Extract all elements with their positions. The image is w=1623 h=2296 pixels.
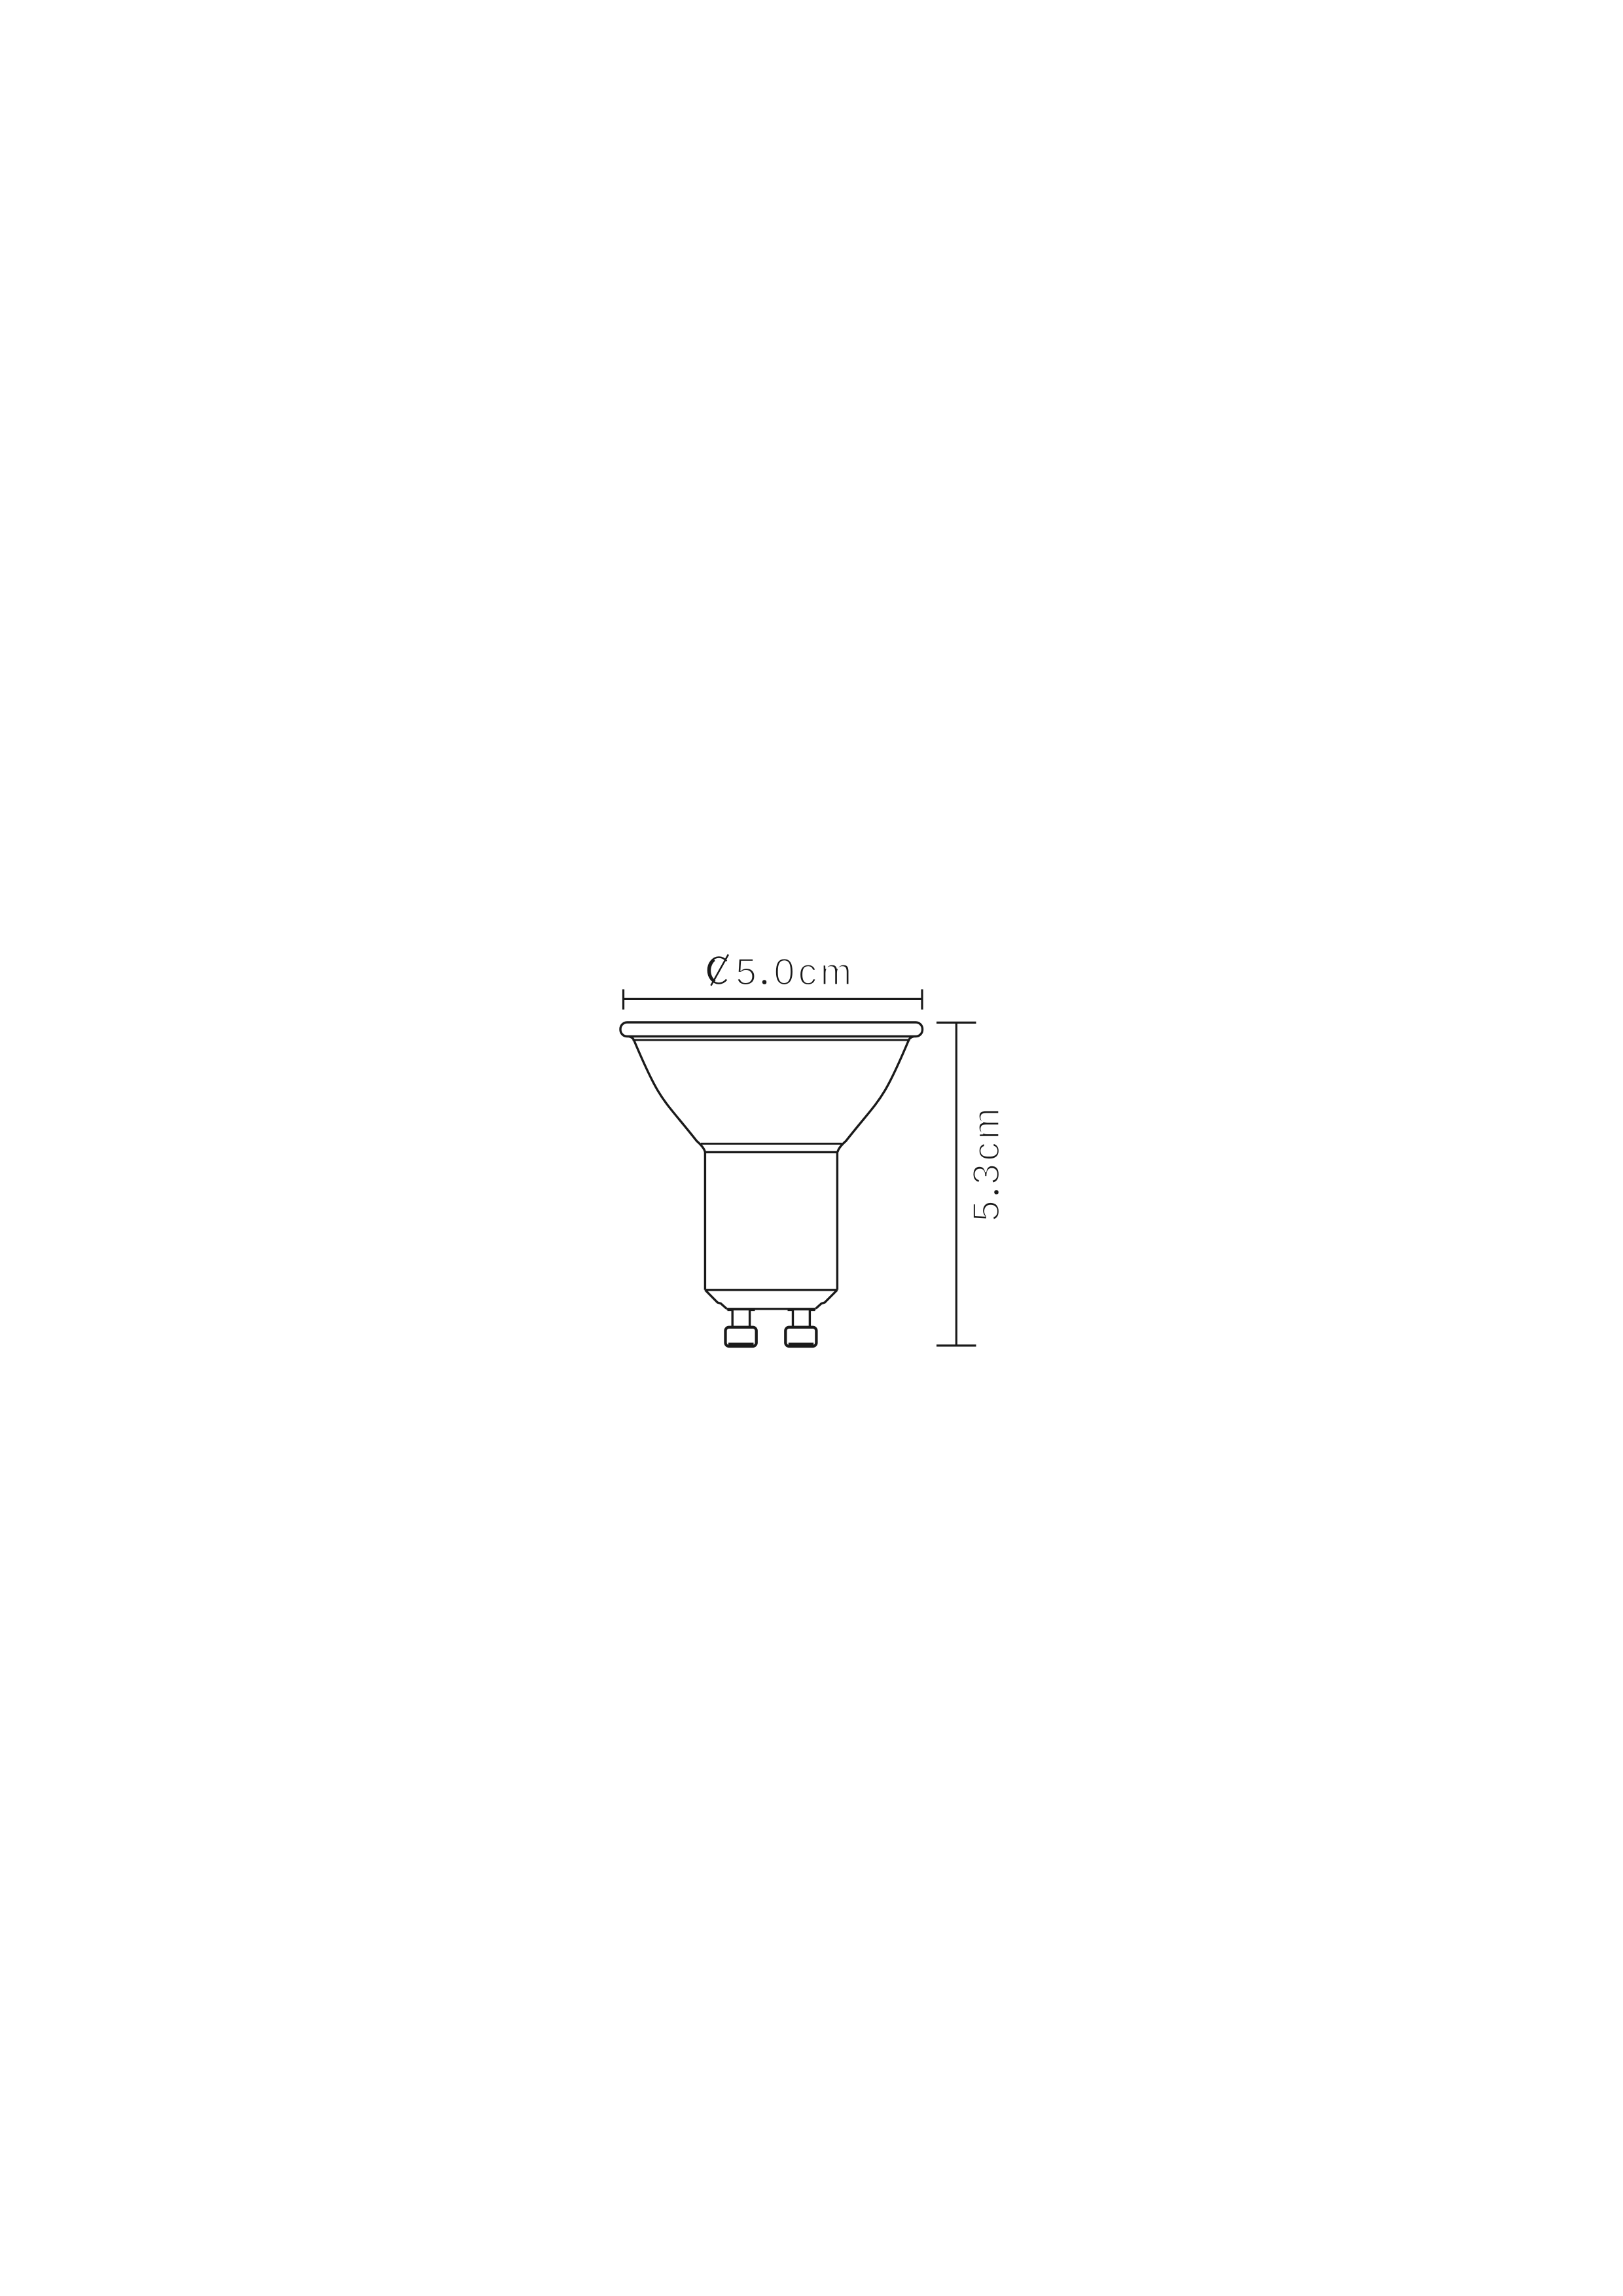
svg-text:5.0cm: 5.0cm: [736, 952, 855, 994]
svg-text:5.3cm: 5.3cm: [966, 1105, 1008, 1222]
